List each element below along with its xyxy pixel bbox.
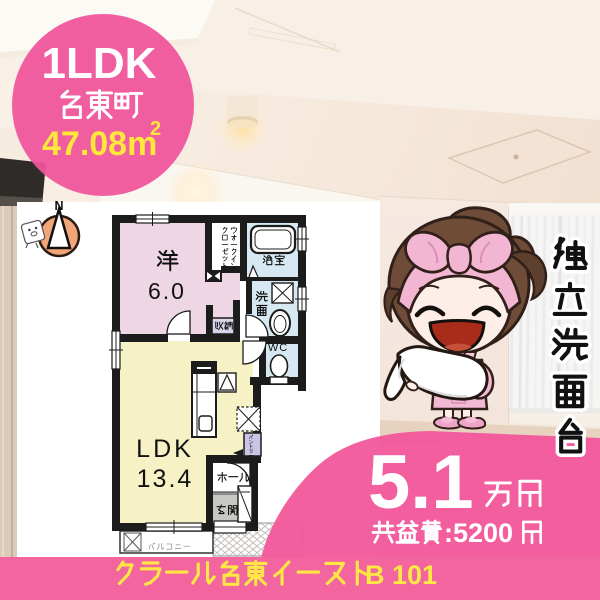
svg-text:6.0: 6.0 [148,278,186,304]
svg-text:1LDK: 1LDK [42,39,157,88]
svg-text:2: 2 [150,118,161,140]
svg-text:13.4: 13.4 [137,465,194,493]
svg-text:LDK: LDK [136,435,194,463]
svg-text:5.1: 5.1 [368,440,474,525]
svg-text:47.08m: 47.08m [42,125,157,163]
svg-text:B 101: B 101 [365,560,437,590]
svg-text::5200: :5200 [444,518,513,548]
svg-text:N: N [54,199,63,213]
svg-text:WC: WC [268,342,288,354]
